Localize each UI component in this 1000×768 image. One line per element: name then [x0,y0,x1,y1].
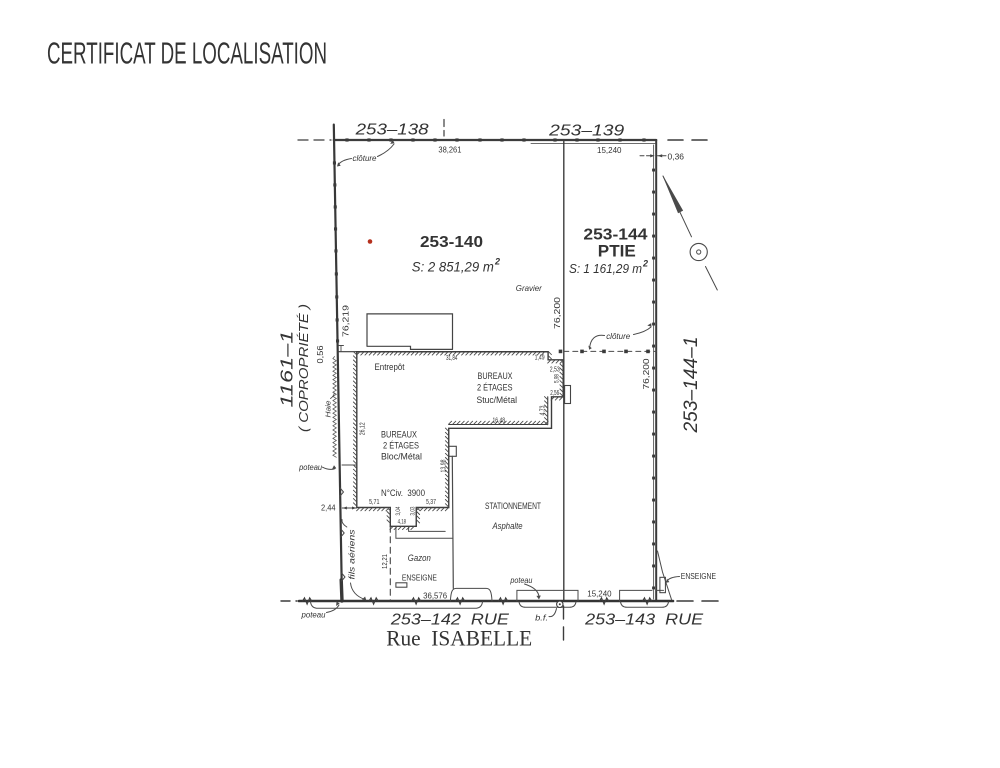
svg-text:2: 2 [494,257,500,267]
svg-text:2 ÉTAGES: 2 ÉTAGES [383,441,419,451]
svg-text:ENSEIGNE: ENSEIGNE [402,573,437,583]
svg-text:poteau: poteau [510,575,533,585]
svg-text:2,53: 2,53 [550,366,560,373]
svg-text:Asphalte: Asphalte [492,521,523,531]
svg-text:76,219: 76,219 [340,305,350,337]
svg-text:Entrepôt: Entrepôt [375,362,405,372]
svg-text:5,37: 5,37 [426,499,436,506]
svg-text:15,240: 15,240 [597,146,622,155]
svg-text:PTIE: PTIE [598,242,636,260]
svg-text:CERTIFICAT DE LOCALISATION: CERTIFICAT DE LOCALISATION [47,37,327,71]
svg-text:253–139: 253–139 [548,122,624,139]
svg-text:Gravier: Gravier [516,283,543,293]
svg-text:2: 2 [642,259,648,269]
svg-text:Haie: Haie [323,401,332,418]
svg-text:STATIONNEMENT: STATIONNEMENT [485,501,541,511]
svg-text:poteau: poteau [301,609,326,619]
svg-text:5,98: 5,98 [554,374,561,383]
svg-text:253-140: 253-140 [420,234,483,251]
svg-text:2 ÉTAGES: 2 ÉTAGES [477,383,513,393]
svg-text:BUREAUX: BUREAUX [381,430,417,440]
svg-text:4,18: 4,18 [398,518,407,525]
svg-text:0,56: 0,56 [315,345,325,363]
svg-text:2,56: 2,56 [550,390,559,397]
svg-text:31,84: 31,84 [446,355,458,362]
svg-text:253–144–1: 253–144–1 [681,337,702,434]
svg-text:ENSEIGNE: ENSEIGNE [681,571,716,581]
svg-text:253-144: 253-144 [583,227,647,244]
svg-text:Gazon: Gazon [408,553,431,563]
svg-text:N°Civ. 3900: N°Civ. 3900 [381,488,425,498]
svg-text:16,48: 16,48 [493,418,506,425]
svg-text:15,240: 15,240 [587,590,612,599]
svg-text:clôture: clôture [353,153,377,163]
svg-text:b.f.: b.f. [535,613,548,622]
svg-text:( COPROPRIÉTÉ ): ( COPROPRIÉTÉ ) [296,304,311,432]
svg-text:26,12: 26,12 [359,422,366,435]
svg-text:76,200: 76,200 [641,358,651,389]
svg-text:76,200: 76,200 [552,297,562,329]
svg-text:Stuc/Métal: Stuc/Métal [477,395,518,405]
svg-text:253–138: 253–138 [354,121,428,138]
svg-text:BUREAUX: BUREAUX [478,371,513,381]
svg-text:5,71: 5,71 [369,499,380,506]
svg-text:12,21: 12,21 [380,554,389,569]
svg-text:1161–1: 1161–1 [277,331,297,408]
svg-text:13,98: 13,98 [441,459,448,472]
svg-text:fils aériens: fils aériens [347,529,357,580]
svg-text:S: 2 851,29 m: S: 2 851,29 m [412,259,494,274]
svg-text:4,73: 4,73 [539,405,546,415]
svg-text:poteau: poteau [298,462,322,472]
svg-text:2,44: 2,44 [321,504,336,513]
svg-text:38,261: 38,261 [438,145,462,154]
svg-text:3,04: 3,04 [395,506,402,515]
svg-text:3,03: 3,03 [410,506,417,515]
svg-text:36,576: 36,576 [423,592,448,601]
svg-text:0,36: 0,36 [668,151,685,161]
svg-text:Rue ISABELLE: Rue ISABELLE [386,626,532,651]
svg-text:1,49: 1,49 [535,355,545,362]
svg-text:S: 1 161,29 m: S: 1 161,29 m [569,261,642,276]
svg-text:clôture: clôture [606,331,630,341]
svg-text:253–143 RUE: 253–143 RUE [584,612,703,629]
svg-text:Bloc/Métal: Bloc/Métal [381,452,422,462]
